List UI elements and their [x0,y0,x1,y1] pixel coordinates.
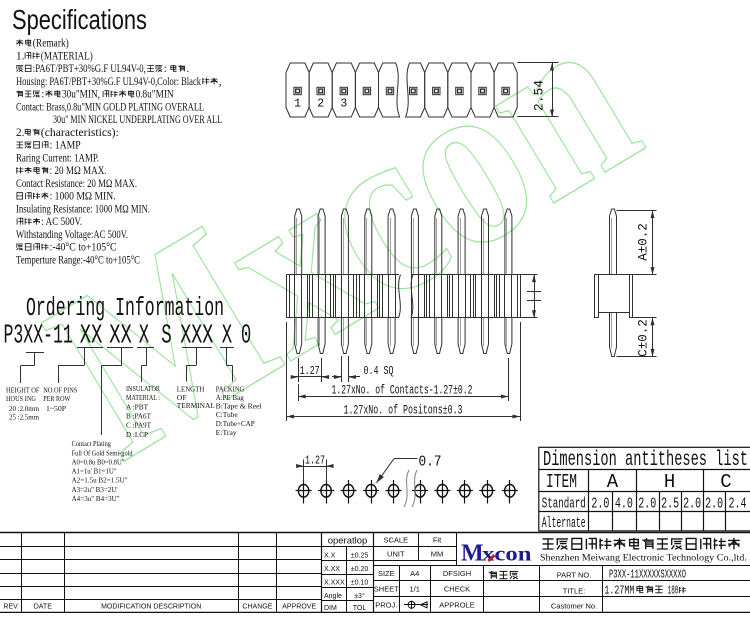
svg-text:4.0: 4.0 [615,496,633,513]
svg-text:ITEM: ITEM [546,471,577,493]
svg-text:MODIFICATION DESCRIPTION: MODIFICATION DESCRIPTION [101,604,201,611]
svg-text:A4: A4 [410,569,419,578]
svg-text:E:Tray: E:Tray [216,428,237,437]
svg-text:1.27: 1.27 [300,364,320,378]
svg-text:PER ROW: PER ROW [43,394,71,403]
svg-text:1.27MM: 1.27MM [604,584,634,598]
svg-text:S: S [161,322,171,352]
svg-text:Contact Resistance: 20 MΩ MAX.: Contact Resistance: 20 MΩ MAX. [16,178,137,190]
svg-text:MATERIAL :: MATERIAL : [126,393,160,402]
svg-text::-40°C to+105°C: :-40°C to+105°C [50,242,117,254]
svg-text:0.8u"MIN: 0.8u"MIN [136,89,174,101]
svg-text:DIM: DIM [324,605,337,612]
svg-text:2.0: 2.0 [638,496,656,513]
svg-text:A1=1u' B1=1U": A1=1u' B1=1U" [72,467,117,476]
svg-text:Contact Plating: Contact Plating [72,439,112,448]
svg-text:(characteristics):: (characteristics): [41,127,119,139]
svg-text:xcon: xcon [482,542,532,566]
svg-text:Standard: Standard [542,496,586,513]
svg-text:Insulating Resistance: 1000 MΩ: Insulating Resistance: 1000 MΩ MIN. [16,203,150,215]
svg-text:2.5: 2.5 [661,496,679,513]
svg-text:SCALE: SCALE [383,536,408,545]
svg-text:,: , [219,76,222,88]
svg-text:: 1AMP: : 1AMP [50,140,81,152]
svg-text:TITLE:: TITLE: [563,587,586,596]
svg-text:A:PE Bag: A:PE Bag [216,393,244,402]
svg-text:1.27xNo. of Contacts-1.27±0.2: 1.27xNo. of Contacts-1.27±0.2 [332,383,473,398]
svg-text:C±0.2: C±0.2 [637,319,651,357]
svg-text:(Remark): (Remark) [33,38,69,50]
svg-text:APPROVE: APPROVE [282,604,316,611]
svg-text:C:Tube: C:Tube [216,410,239,419]
svg-text:1~50P: 1~50P [46,405,66,413]
svg-text:X.XXX: X.XXX [324,580,345,587]
svg-text:REV: REV [3,604,18,611]
svg-text:MM: MM [431,550,444,559]
svg-text:0.7: 0.7 [419,455,442,471]
svg-text:1.: 1. [16,50,25,62]
svg-text:1/1: 1/1 [409,585,419,594]
svg-text:SHEET: SHEET [374,585,399,594]
svg-text:TOL: TOL [353,605,367,612]
svg-text:DATE: DATE [34,604,52,611]
svg-text:.: . [186,63,189,75]
svg-text:C :PA9T: C :PA9T [126,421,151,430]
svg-text:A0=0.8u B0=0.8U": A0=0.8u B0=0.8U" [72,458,125,467]
svg-text:2.4: 2.4 [729,496,747,513]
svg-text:Raring Current: 1AMP.: Raring Current: 1AMP. [16,152,99,164]
svg-text:P3XX-11: P3XX-11 [4,322,73,352]
svg-text:±0.10: ±0.10 [351,580,369,587]
svg-text:25 :2.5mm: 25 :2.5mm [9,414,40,422]
svg-text:Dimension antitheses list: Dimension antitheses list [543,449,748,472]
svg-text:D:Tube+CAP: D:Tube+CAP [216,419,255,428]
svg-text:3: 3 [340,98,347,111]
svg-text:A: A [607,471,619,493]
svg-text:C: C [720,471,731,493]
svg-text::: : [41,89,44,101]
svg-text:A :PBT: A :PBT [126,403,148,412]
svg-text:D :LCP: D :LCP [126,430,148,439]
svg-text:180: 180 [668,584,679,598]
svg-text:30u"MIN,: 30u"MIN, [62,89,100,101]
svg-text:A4=3u" B4=3U": A4=3u" B4=3U" [72,494,120,503]
svg-text:1.27xNo. of Positons±0.3: 1.27xNo. of Positons±0.3 [344,403,463,418]
svg-text:±3°: ±3° [354,592,365,600]
svg-text:Shenzhen Meiwang Electronic Te: Shenzhen Meiwang Electronic Technology C… [540,554,747,564]
svg-text:Temperture Range:-40°C to+105°: Temperture Range:-40°C to+105°C [16,254,140,266]
svg-text:Contact: Brass,0.8u"MIN GOLD P: Contact: Brass,0.8u"MIN GOLD PLATING OVE… [16,101,204,113]
svg-text:20 :2.0mm: 20 :2.0mm [9,405,40,413]
svg-text:±0.25: ±0.25 [351,553,369,560]
svg-text:X.X: X.X [324,553,336,560]
svg-text:±0.20: ±0.20 [351,566,369,573]
svg-text:Castomer No.: Castomer No. [551,602,597,611]
svg-text::: : [164,63,167,75]
svg-text:APPROLE: APPROLE [439,601,474,610]
svg-text:1: 1 [294,98,301,111]
svg-text:Withstanding Voltage:AC 500V.: Withstanding Voltage:AC 500V. [16,229,128,241]
svg-text:(MATERIAL): (MATERIAL) [41,50,93,62]
svg-text:CHANGE: CHANGE [242,604,272,611]
svg-text:30u" MIN NICKEL UNDERPLATING O: 30u" MIN NICKEL UNDERPLATING OVER ALL [53,114,222,126]
svg-text:: 1000 MΩ MIN.: : 1000 MΩ MIN. [50,191,116,203]
svg-text:H: H [664,471,675,493]
svg-text:Fit: Fit [433,536,442,545]
svg-text:2.0: 2.0 [705,496,723,513]
svg-text:SIZE: SIZE [378,569,395,578]
svg-text:0: 0 [241,322,251,352]
svg-text:Specifications: Specifications [12,4,147,35]
svg-text:M: M [461,541,484,567]
svg-text:PROJ.: PROJ. [375,601,397,610]
svg-text:X.XX: X.XX [324,566,340,573]
svg-text:A3=2u" B3=2U': A3=2u" B3=2U' [72,485,119,494]
svg-text:: 20 MΩ MAX.: : 20 MΩ MAX. [50,165,107,177]
svg-text:Full Of Gold Semi-gold: Full Of Gold Semi-gold [72,449,133,458]
svg-text:UNIT: UNIT [387,550,405,559]
svg-text:Ordering Information: Ordering Information [26,294,224,323]
svg-text:HOUS ING: HOUS ING [6,394,36,403]
svg-text:P3XX-11XXXXXSXXXXO: P3XX-11XXXXXSXXXXO [609,568,686,582]
svg-text:2.0: 2.0 [591,496,609,513]
svg-text:Housing: PA6T/PBT+30%G.F UL94V: Housing: PA6T/PBT+30%G.F UL94V-0,Color: … [16,76,201,88]
svg-text:TERMINAL: TERMINAL [177,401,215,410]
svg-text:operatlop: operatlop [328,536,368,547]
svg-text:Alternate: Alternate [542,515,586,532]
svg-text:PART NO.: PART NO. [557,571,592,580]
svg-text:0.4 SQ: 0.4 SQ [364,364,394,378]
svg-text:2: 2 [317,98,324,111]
svg-text:B :PA6T: B :PA6T [126,412,151,421]
svg-text:CHECK: CHECK [444,585,470,594]
svg-text:2.0: 2.0 [683,496,701,513]
svg-text:: AC 500V.: : AC 500V. [41,216,82,228]
svg-text:2.: 2. [16,127,25,139]
svg-text:1.27: 1.27 [305,455,325,468]
svg-text:A2=1.5u B2=1.5U": A2=1.5u B2=1.5U" [72,476,128,485]
svg-text:DFSIGH: DFSIGH [443,569,471,578]
svg-text::PA6T/PBT+30%G.F UL94V-0,: :PA6T/PBT+30%G.F UL94V-0, [33,63,146,75]
svg-text:A±0.2: A±0.2 [637,223,651,261]
svg-text:INSULATOR: INSULATOR [126,384,161,393]
svg-text:2.54: 2.54 [532,80,547,111]
svg-text:Angle: Angle [324,593,342,600]
